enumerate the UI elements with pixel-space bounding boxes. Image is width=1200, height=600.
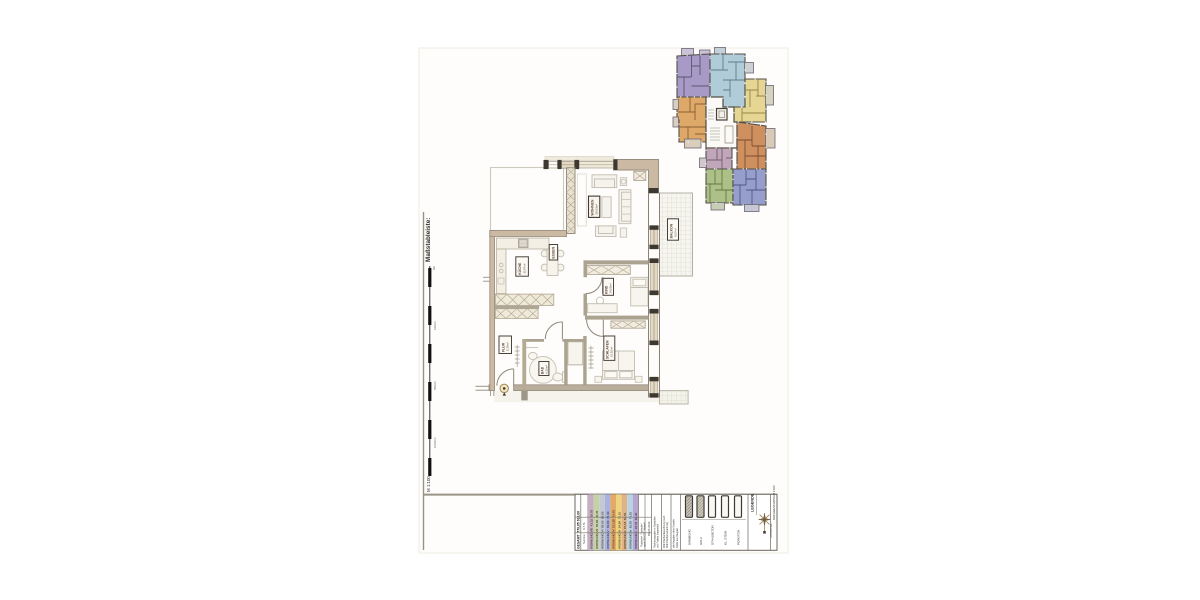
svg-text:WOHNUNG IV 101,89 93,40: WOHNUNG IV 101,89 93,40: [612, 510, 616, 549]
svg-text:15,92m²: 15,92m²: [610, 347, 614, 357]
svg-text:KL. STEIN: KL. STEIN: [724, 531, 728, 545]
svg-text:28,63m²: 28,63m²: [595, 204, 599, 215]
svg-text:9,67m²: 9,67m²: [673, 228, 677, 237]
svg-text:LEGENDE: LEGENDE: [751, 493, 755, 512]
svg-text:WOHNUNG V 83,80 74,30: WOHNUNG V 83,80 74,30: [606, 511, 610, 549]
svg-text:OG/III 2016: OG/III 2016: [647, 521, 651, 536]
svg-text:10,97m²: 10,97m²: [522, 263, 526, 273]
svg-text:DACHGESCHOSS M 1:100: DACHGESCHOSS M 1:100: [772, 485, 776, 520]
svg-text:1000cm: 1000cm: [433, 437, 437, 448]
svg-text:5,30m²: 5,30m²: [506, 342, 510, 351]
svg-text:0m: 0m: [432, 265, 436, 270]
svg-text:6,26m²: 6,26m²: [544, 365, 548, 374]
svg-text:DÄMMUNG: DÄMMUNG: [688, 529, 692, 545]
svg-text:STAHLBETON: STAHLBETON: [711, 525, 715, 545]
svg-text:M 1:100: M 1:100: [426, 476, 431, 492]
svg-text:100cm: 100cm: [433, 320, 437, 330]
svg-text:NORDPFEIL: NORDPFEIL: [769, 523, 773, 538]
svg-text:WOHNUNG VI 95,06 86,96: WOHNUNG VI 95,06 86,96: [601, 511, 605, 549]
svg-text:Wohnflächenverordnung: Wohnflächenverordnung: [666, 521, 669, 548]
svg-text:Maßstableiste:: Maßstableiste:: [425, 218, 432, 262]
svg-text:POROTON: POROTON: [737, 530, 741, 545]
svg-text:WOHNUNG I 93,66 82,30: WOHNUNG I 93,66 82,30: [634, 512, 638, 549]
svg-text:und Farben dargestellt: und Farben dargestellt: [657, 524, 660, 548]
svg-text:HOLZ: HOLZ: [699, 537, 703, 545]
svg-text:WOHNUNG VIII 43,32 29,78: WOHNUNG VIII 43,32 29,78: [589, 510, 593, 549]
svg-text:14,09m²: 14,09m²: [609, 283, 613, 293]
svg-text:500cm: 500cm: [433, 380, 437, 390]
svg-text:Maße aus Bauplan: Maße aus Bauplan: [676, 527, 679, 548]
svg-text:GESAMT 779,65 619,06: GESAMT 779,65 619,06: [577, 511, 581, 549]
svg-text:WOHNUNG VII 56,86 49,35: WOHNUNG VII 56,86 49,35: [595, 510, 599, 549]
svg-text:WOHNUNG II 97,18 83,52: WOHNUNG II 97,18 83,52: [623, 512, 627, 549]
svg-text:ESSEN: ESSEN: [552, 247, 556, 259]
